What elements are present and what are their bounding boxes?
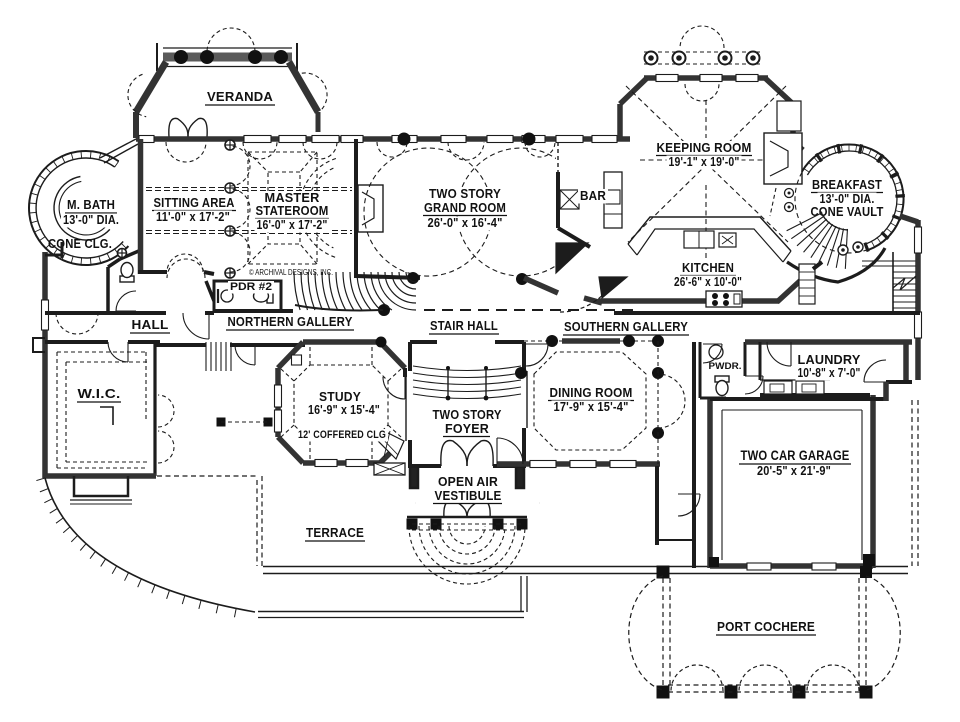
svg-text:TWO STORY: TWO STORY [433, 407, 502, 422]
svg-text:TWO STORY: TWO STORY [429, 186, 501, 201]
svg-text:12' COFFERED CLG: 12' COFFERED CLG [298, 429, 386, 441]
svg-text:NORTHERN GALLERY: NORTHERN GALLERY [228, 314, 353, 329]
svg-text:GRAND ROOM: GRAND ROOM [424, 200, 506, 215]
svg-text:11'-0" x 17'-2": 11'-0" x 17'-2" [156, 210, 230, 224]
svg-text:SOUTHERN GALLERY: SOUTHERN GALLERY [564, 319, 688, 334]
svg-text:CONE CLG.: CONE CLG. [48, 236, 112, 251]
svg-text:OPEN AIR: OPEN AIR [438, 474, 498, 489]
svg-text:26'-6" x 10'-0": 26'-6" x 10'-0" [674, 275, 742, 289]
svg-text:PDR #2: PDR #2 [230, 281, 272, 293]
svg-text:KITCHEN: KITCHEN [682, 260, 734, 275]
svg-text:BAR: BAR [580, 188, 606, 203]
svg-text:W.I.C.: W.I.C. [78, 386, 121, 401]
svg-text:20'-5" x 21'-9": 20'-5" x 21'-9" [757, 464, 831, 478]
svg-text:LAUNDRY: LAUNDRY [798, 352, 861, 367]
svg-text:10'-8" x 7'-0": 10'-8" x 7'-0" [798, 366, 861, 380]
svg-text:DINING ROOM: DINING ROOM [550, 385, 633, 400]
svg-text:VERANDA: VERANDA [207, 89, 273, 104]
svg-text:KEEPING ROOM: KEEPING ROOM [657, 140, 752, 155]
svg-text:19'-1" x 19'-0": 19'-1" x 19'-0" [669, 155, 740, 169]
svg-text:FOYER: FOYER [445, 421, 489, 436]
svg-text:© ARCHIVAL DESIGNS, INC.: © ARCHIVAL DESIGNS, INC. [249, 268, 333, 277]
svg-text:TERRACE: TERRACE [306, 525, 364, 540]
svg-text:TWO CAR GARAGE: TWO CAR GARAGE [741, 448, 850, 463]
svg-text:16'-9" x 15'-4": 16'-9" x 15'-4" [308, 403, 380, 417]
svg-text:16'-0" x 17'-2": 16'-0" x 17'-2" [257, 218, 328, 232]
svg-text:17'-9" x 15'-4": 17'-9" x 15'-4" [554, 400, 629, 414]
svg-text:PORT COCHERE: PORT COCHERE [717, 619, 815, 634]
svg-text:STATEROOM: STATEROOM [256, 203, 329, 218]
svg-text:SITTING AREA: SITTING AREA [154, 195, 235, 210]
svg-text:HALL: HALL [132, 317, 169, 332]
svg-text:PWDR.: PWDR. [709, 361, 742, 372]
svg-text:M. BATH: M. BATH [67, 197, 115, 212]
svg-text:CONE VAULT: CONE VAULT [811, 204, 884, 219]
svg-text:STAIR HALL: STAIR HALL [430, 318, 498, 333]
svg-text:BREAKFAST: BREAKFAST [812, 177, 882, 192]
svg-text:13'-0" DIA.: 13'-0" DIA. [63, 213, 119, 227]
svg-text:STUDY: STUDY [319, 389, 361, 404]
svg-text:26'-0" x 16'-4": 26'-0" x 16'-4" [428, 216, 503, 230]
svg-text:VESTIBULE: VESTIBULE [435, 488, 502, 503]
